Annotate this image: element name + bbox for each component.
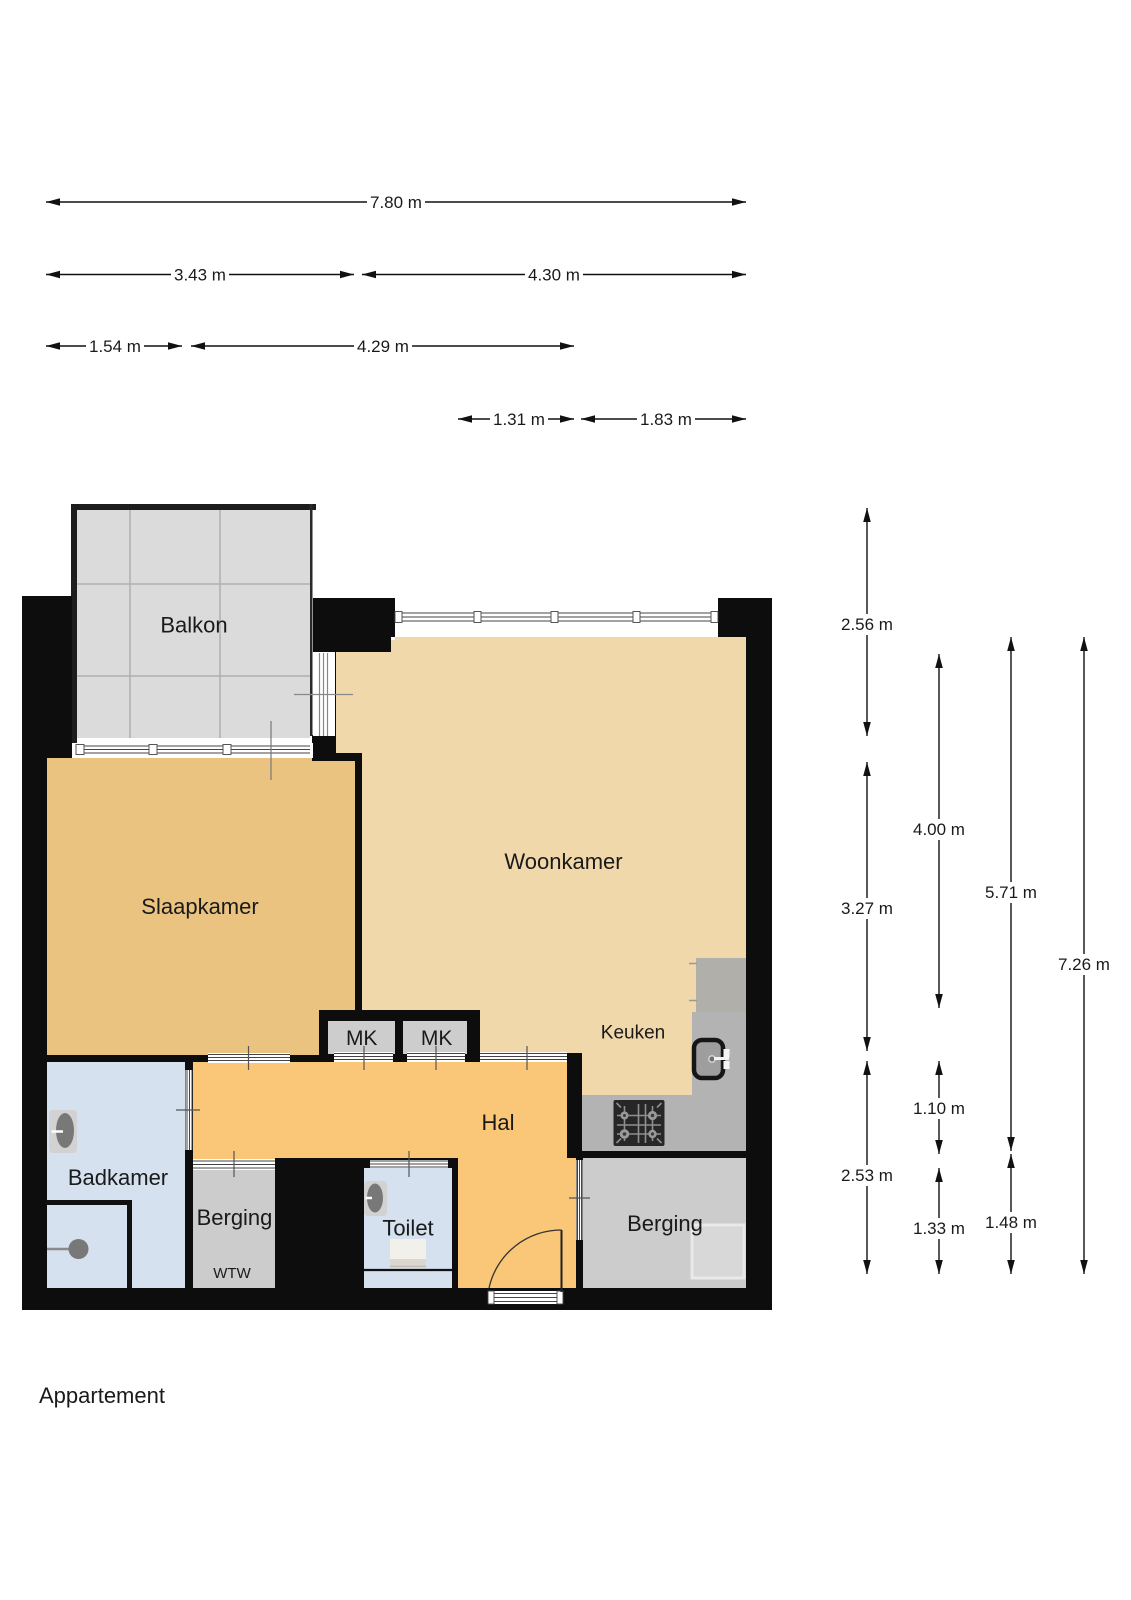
svg-text:2.53 m: 2.53 m	[841, 1166, 893, 1185]
svg-text:1.33 m: 1.33 m	[913, 1219, 965, 1238]
svg-text:5.71 m: 5.71 m	[985, 883, 1037, 902]
svg-text:Badkamer: Badkamer	[68, 1165, 168, 1190]
svg-text:Balkon: Balkon	[160, 613, 227, 638]
svg-text:MK: MK	[421, 1027, 453, 1050]
svg-text:MK: MK	[346, 1027, 378, 1050]
svg-text:1.83 m: 1.83 m	[640, 410, 692, 429]
svg-text:1.48 m: 1.48 m	[985, 1213, 1037, 1232]
svg-text:7.80 m: 7.80 m	[370, 193, 422, 212]
svg-text:Hal: Hal	[481, 1110, 514, 1135]
svg-text:Toilet: Toilet	[382, 1216, 433, 1241]
svg-text:Keuken: Keuken	[601, 1023, 665, 1044]
svg-text:1.10 m: 1.10 m	[913, 1099, 965, 1118]
svg-text:Berging: Berging	[197, 1205, 273, 1230]
svg-text:Berging: Berging	[627, 1211, 703, 1236]
svg-text:Appartement: Appartement	[39, 1383, 165, 1408]
svg-text:Slaapkamer: Slaapkamer	[141, 894, 258, 919]
svg-text:3.27 m: 3.27 m	[841, 899, 893, 918]
svg-text:7.26 m: 7.26 m	[1058, 955, 1110, 974]
svg-text:3.43 m: 3.43 m	[174, 266, 226, 285]
svg-text:4.29 m: 4.29 m	[357, 337, 409, 356]
svg-text:1.54 m: 1.54 m	[89, 337, 141, 356]
svg-text:WTW: WTW	[213, 1265, 251, 1282]
svg-text:2.56 m: 2.56 m	[841, 615, 893, 634]
svg-text:4.00 m: 4.00 m	[913, 820, 965, 839]
svg-text:Woonkamer: Woonkamer	[504, 849, 622, 874]
svg-text:1.31 m: 1.31 m	[493, 410, 545, 429]
svg-text:4.30 m: 4.30 m	[528, 266, 580, 285]
